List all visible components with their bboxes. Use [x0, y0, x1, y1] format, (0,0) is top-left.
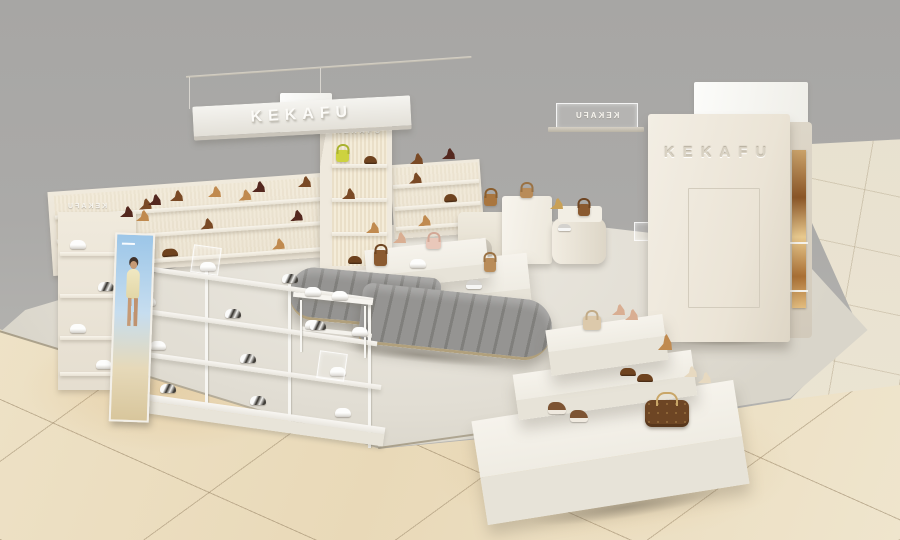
black-white-sneakers [310, 321, 326, 330]
gray-sneakers [466, 280, 482, 289]
brown-high-top-sneakers [548, 402, 566, 414]
white-sneakers [335, 408, 351, 417]
brown-high-top-sneakers [570, 410, 588, 422]
silver-flat-shoe [558, 224, 571, 231]
brown-loafers [620, 368, 636, 376]
left-shelf-sign-text: KEKAFU [66, 203, 107, 210]
monogram-duffel-bag [645, 400, 689, 427]
center-hanging-sign-text: KEKAFU [574, 104, 619, 128]
black-white-sneakers [282, 274, 298, 283]
white-sneakers [305, 287, 321, 296]
black-white-sneakers [240, 354, 256, 363]
tower-side-face [788, 122, 812, 338]
yellow-handbag [336, 150, 349, 162]
rack-post [205, 266, 208, 410]
model-poster [109, 232, 156, 422]
brown-heels [410, 153, 423, 164]
brown-loafers [162, 248, 179, 257]
hanging-sign-rod-left [189, 77, 190, 109]
black-white-sneakers [225, 309, 241, 318]
acrylic-display-cube [316, 350, 348, 382]
brown-handbag [578, 204, 590, 216]
brown-loafers [348, 256, 362, 264]
black-white-sneakers [98, 282, 114, 291]
pink-handbag [426, 238, 441, 249]
poster-model-dress [126, 269, 140, 299]
black-white-sneakers [160, 384, 176, 393]
brown-loafers [637, 374, 653, 382]
rack-post [288, 284, 291, 430]
brown-loafers [444, 194, 458, 203]
poster-model-face [130, 261, 137, 269]
side-table-leg [300, 300, 302, 352]
white-sneakers [410, 259, 426, 268]
acrylic-display-cube [190, 244, 222, 276]
tower-side-poster [792, 150, 806, 308]
poster-caption [122, 243, 135, 245]
center-hanging-sign-shelf [548, 127, 644, 132]
brown-handbag [374, 250, 387, 266]
beige-crossbody-bag [583, 316, 601, 330]
brown-loafers [364, 156, 377, 164]
white-sneakers [70, 324, 86, 333]
poster-model-legs [127, 298, 138, 326]
black-white-sneakers [250, 396, 266, 405]
tower-panel-outline [688, 188, 760, 308]
white-sneakers [332, 291, 348, 300]
white-sneakers [70, 240, 86, 249]
tower-sign: KEKAFU [648, 144, 790, 162]
tower-sign-text: KEKAFU [664, 144, 775, 161]
store-kiosk-render: KEKAFU KEKAFU [0, 0, 900, 540]
white-sneakers [352, 327, 368, 336]
dark-heels [442, 148, 455, 159]
tan-handbag [484, 258, 496, 272]
hanging-sign-rail [186, 56, 471, 78]
tan-handbag [520, 188, 533, 198]
shelf-board [332, 198, 387, 202]
brown-box-bag [484, 194, 497, 206]
white-sneakers [150, 341, 166, 350]
left-shelf-sign: KEKAFU [66, 203, 107, 210]
tower-side-ledge [790, 290, 808, 292]
shelf-board [332, 164, 387, 168]
hanging-sign-text: KEKAFU [250, 103, 353, 125]
center-hanging-sign: KEKAFU [556, 103, 638, 130]
tower-side-ledge [790, 242, 808, 244]
tower-front-face: KEKAFU [648, 114, 790, 342]
